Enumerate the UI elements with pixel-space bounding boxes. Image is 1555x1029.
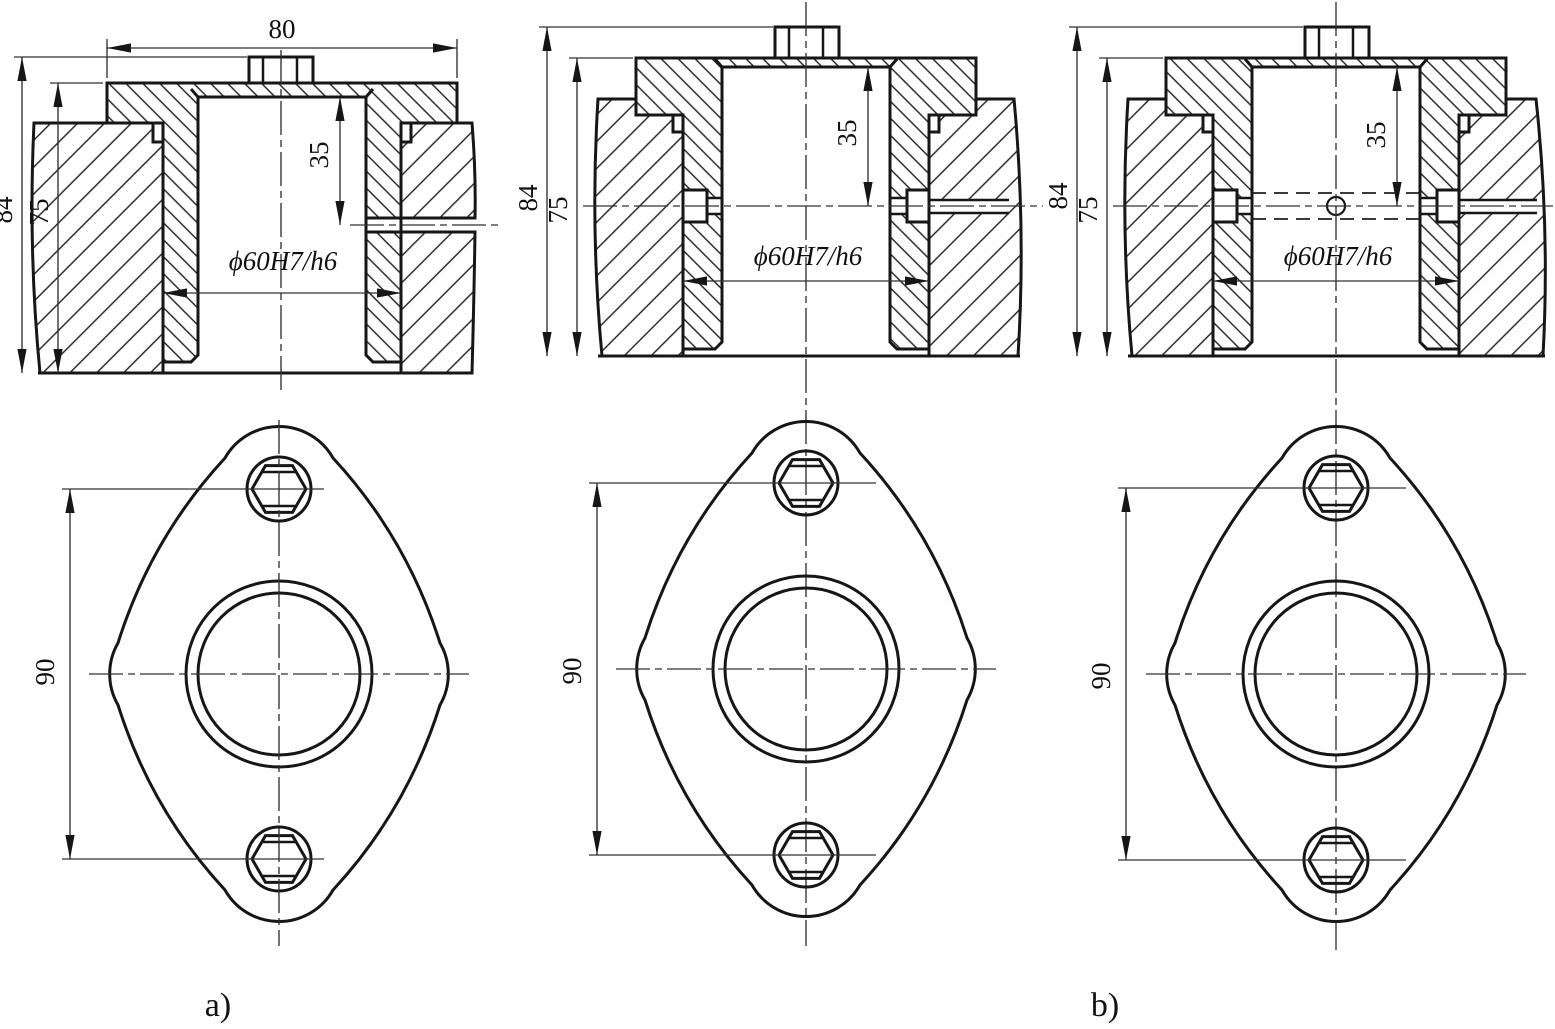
section-view-a: 80 84 75 35 ϕ60H7/h6	[0, 14, 498, 395]
plan-view-b: 90 b)	[1086, 426, 1526, 1024]
jig-plate-left	[1125, 99, 1213, 356]
jig-plate-left	[595, 99, 683, 356]
fit-label: ϕ60H7/h6	[229, 246, 338, 276]
section-view-middle: 84 75 35 ϕ60H7/h6	[513, 2, 1043, 946]
jig-plate-right	[1459, 99, 1545, 356]
dim-84: 84	[0, 196, 18, 224]
dim-35: 35	[304, 142, 334, 169]
dim-75: 75	[1073, 197, 1103, 224]
dim-35: 35	[1361, 122, 1391, 149]
dim-75: 75	[24, 199, 54, 226]
cap-screw-head	[1305, 27, 1369, 58]
dim-75: 75	[543, 197, 573, 224]
jig-plate-left	[32, 123, 163, 373]
dim-84: 84	[1043, 182, 1073, 210]
dim-80: 80	[269, 14, 296, 44]
dim-84: 84	[513, 184, 543, 212]
view-caption-b: b)	[1091, 987, 1119, 1024]
dim-35: 35	[832, 120, 862, 147]
bushing-assembly-drawing: 80 84 75 35 ϕ60H7/h6 90 a)	[0, 0, 1555, 1029]
cap-screw-head	[775, 27, 839, 58]
technical-drawing-page: 80 84 75 35 ϕ60H7/h6 90 a)	[0, 0, 1555, 1029]
dim-90: 90	[557, 658, 587, 685]
view-caption-a: a)	[205, 987, 231, 1024]
plan-view-middle: 90	[557, 421, 996, 916]
fit-label: ϕ60H7/h6	[754, 241, 863, 271]
plan-view-a: 90 a)	[30, 420, 469, 1024]
jig-plate-right-lower	[401, 232, 475, 373]
dim-90: 90	[30, 659, 60, 686]
section-view-b: 84 75 35 ϕ60H7/h6	[1043, 2, 1553, 950]
jig-plate-right	[929, 99, 1021, 356]
dim-90: 90	[1086, 663, 1116, 690]
fit-label: ϕ60H7/h6	[1284, 241, 1393, 271]
